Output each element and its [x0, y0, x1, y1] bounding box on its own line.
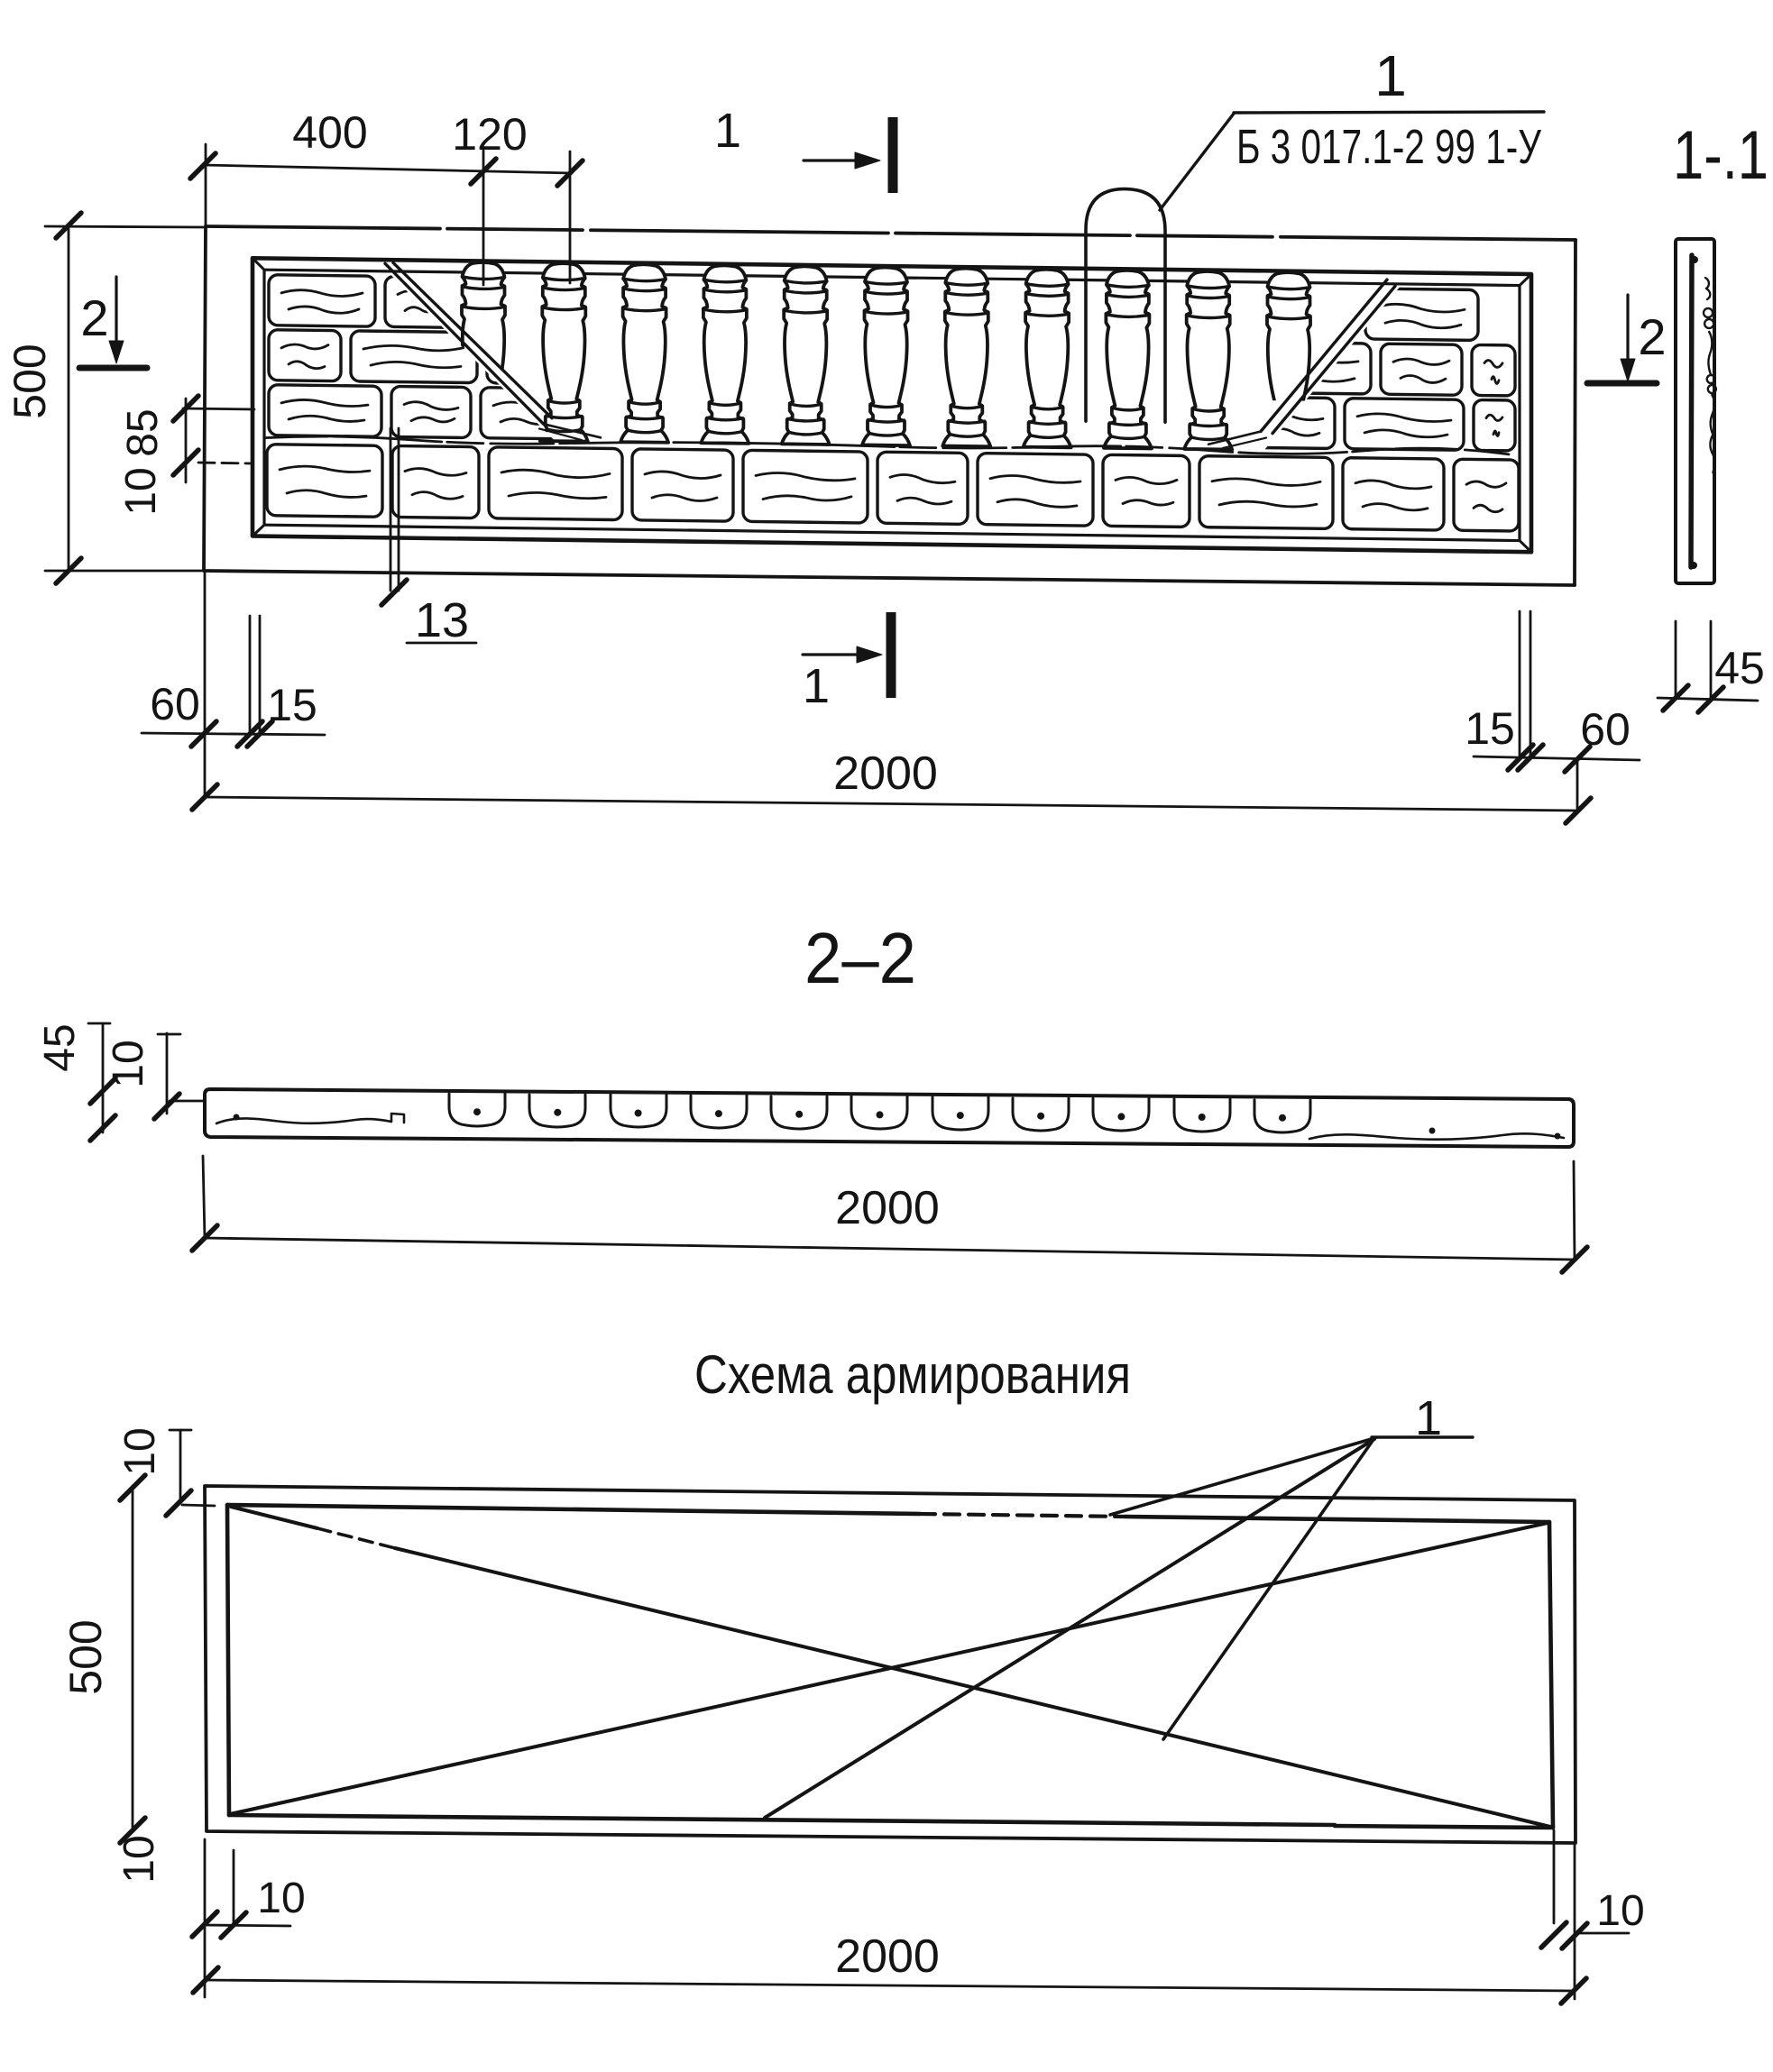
svg-text:500: 500 — [5, 344, 55, 418]
svg-text:Схема армирования: Схема армирования — [694, 1344, 1131, 1405]
svg-text:45: 45 — [1714, 643, 1765, 693]
svg-text:15: 15 — [267, 680, 317, 730]
svg-text:10: 10 — [257, 1875, 305, 1922]
svg-text:120: 120 — [452, 109, 527, 160]
svg-text:45: 45 — [36, 1023, 84, 1071]
svg-text:500: 500 — [60, 1619, 111, 1694]
svg-text:2: 2 — [1638, 308, 1666, 365]
svg-text:60: 60 — [150, 679, 200, 729]
svg-text:15: 15 — [1465, 703, 1515, 754]
svg-text:1: 1 — [1415, 1391, 1442, 1445]
svg-text:10: 10 — [116, 1427, 164, 1475]
svg-text:10: 10 — [105, 1040, 152, 1087]
svg-text:Б 3 017.1-2 99 1-У: Б 3 017.1-2 99 1-У — [1236, 120, 1542, 174]
svg-text:2–2: 2–2 — [804, 918, 916, 998]
svg-text:85: 85 — [119, 408, 167, 456]
svg-text:1: 1 — [803, 659, 830, 713]
svg-text:2000: 2000 — [835, 1930, 940, 1983]
svg-text:1: 1 — [714, 104, 741, 158]
svg-text:60: 60 — [1580, 704, 1631, 755]
svg-text:400: 400 — [292, 107, 367, 158]
svg-text:1: 1 — [1374, 43, 1407, 108]
svg-text:2: 2 — [80, 289, 108, 346]
svg-text:10: 10 — [115, 1835, 163, 1883]
svg-text:10: 10 — [1596, 1887, 1644, 1935]
svg-text:13: 13 — [415, 593, 469, 647]
svg-text:2000: 2000 — [833, 747, 938, 800]
svg-text:10: 10 — [117, 467, 165, 515]
svg-text:2000: 2000 — [835, 1182, 940, 1234]
svg-text:1-.1: 1-.1 — [1673, 117, 1768, 194]
